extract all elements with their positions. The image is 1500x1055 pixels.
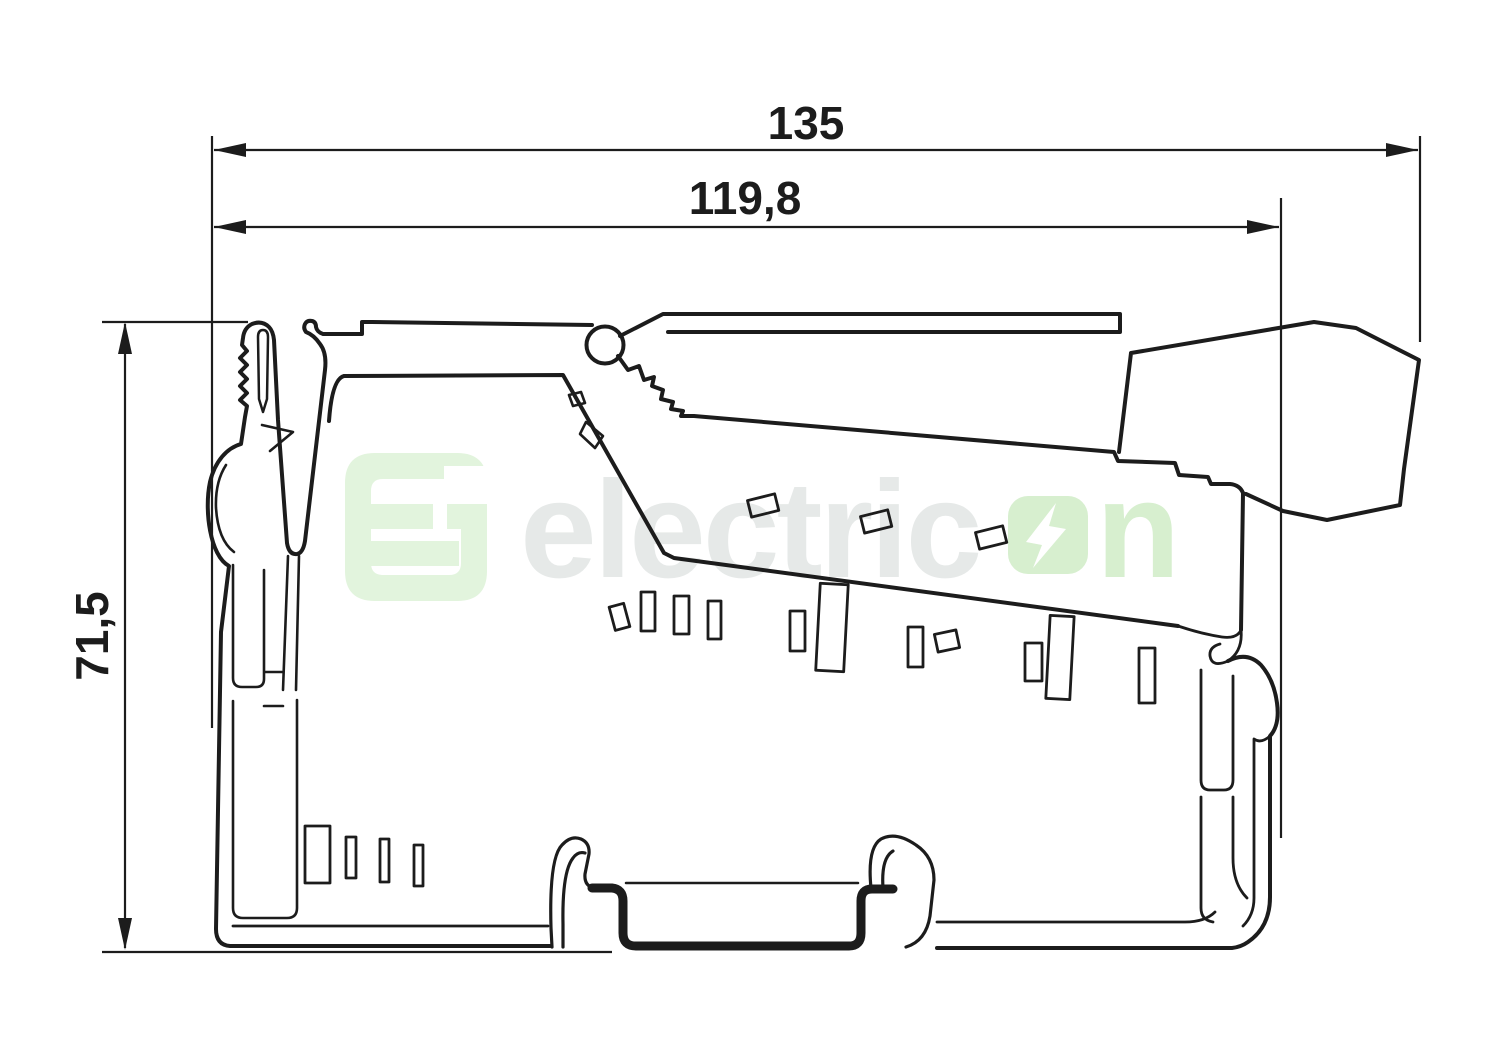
arrowhead-right-icon [1386, 143, 1418, 157]
watermark: electric n [345, 453, 1177, 607]
watermark-letter-o [1008, 496, 1088, 574]
dimension-overall-width: 135 [214, 97, 1418, 157]
arrowhead-left-icon [214, 143, 246, 157]
left-compartments [233, 556, 299, 918]
dimension-drawing-page: electric n [0, 0, 1500, 1055]
watermark-text-green: n [1096, 453, 1177, 607]
right-edge [1241, 493, 1243, 630]
dimension-label-135: 135 [768, 97, 845, 149]
din-foot-left [551, 838, 594, 947]
dimension-label-71-5: 71,5 [66, 591, 118, 681]
dimension-height: 71,5 [66, 322, 132, 950]
dimension-label-119-8: 119,8 [689, 172, 802, 224]
arrowhead-left-icon [214, 220, 246, 234]
arrowhead-down-icon [118, 918, 132, 950]
module-outline-left [208, 321, 592, 946]
release-lever [620, 314, 1120, 336]
arrowhead-right-icon [1247, 220, 1279, 234]
arrowhead-up-icon [118, 322, 132, 354]
dimension-upper-width: 119,8 [214, 172, 1279, 234]
din-rail-channel [592, 888, 893, 946]
module-profile-drawing [208, 314, 1419, 948]
watermark-text-grey: electric [520, 453, 979, 607]
vent-slots [305, 826, 423, 886]
brand-logo-icon [345, 453, 490, 601]
right-lower-outline [937, 657, 1278, 948]
clamp-blade [258, 330, 268, 412]
right-inner-lines [233, 670, 1270, 926]
drawing-canvas: electric n [0, 0, 1500, 1055]
